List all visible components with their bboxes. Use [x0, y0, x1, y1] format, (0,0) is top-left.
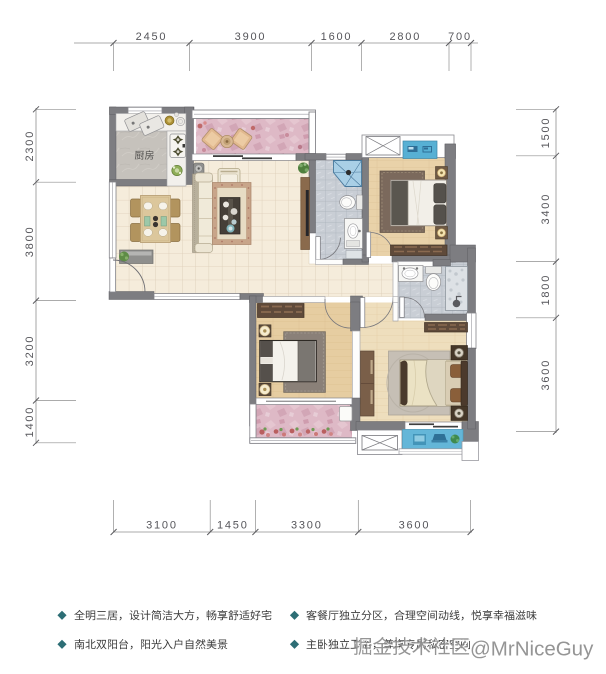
svg-text:2450: 2450: [136, 31, 168, 43]
svg-text:3600: 3600: [399, 520, 431, 532]
svg-text:2300: 2300: [24, 130, 36, 162]
svg-text:1500: 1500: [540, 117, 552, 149]
svg-text:3200: 3200: [24, 335, 36, 367]
svg-text:1800: 1800: [540, 274, 552, 306]
svg-text:3800: 3800: [24, 226, 36, 258]
svg-text:3900: 3900: [235, 31, 267, 43]
svg-text:3300: 3300: [291, 520, 323, 532]
svg-text:1600: 1600: [321, 31, 353, 43]
svg-text:3600: 3600: [540, 359, 552, 391]
svg-text:700: 700: [448, 31, 472, 43]
svg-text:1400: 1400: [24, 406, 36, 438]
svg-text:1450: 1450: [217, 520, 249, 532]
svg-text:3100: 3100: [146, 520, 178, 532]
svg-text:2800: 2800: [389, 31, 421, 43]
svg-text:3400: 3400: [540, 193, 552, 225]
